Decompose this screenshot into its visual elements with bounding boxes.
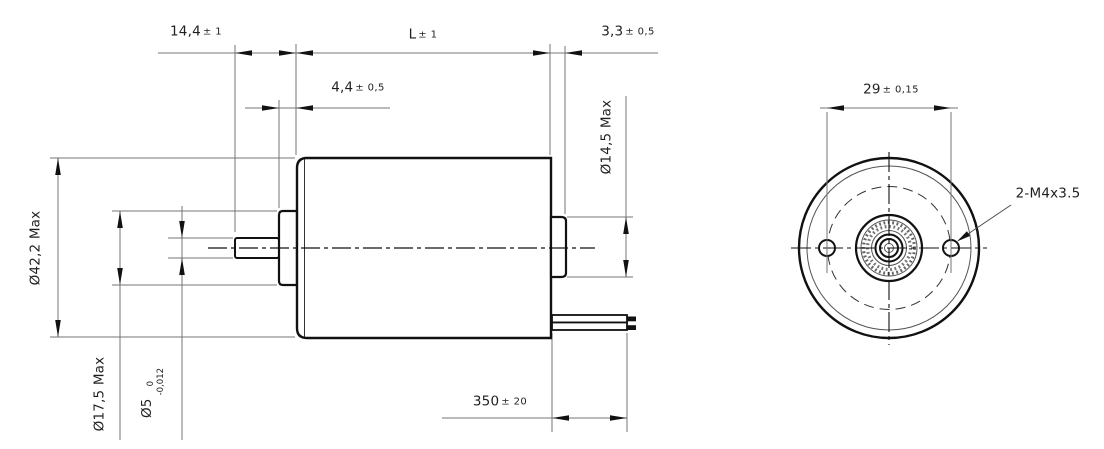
front-view: [791, 105, 1011, 345]
dim-label-rear-boss-diameter: Ø14,5 Max: [600, 100, 614, 175]
dim-label-body-diameter: Ø42,2 Max: [29, 211, 43, 286]
dim-label-hole-spacing: 29± 0,15: [863, 83, 919, 97]
lead-wires: [552, 315, 636, 330]
dim-label-body-length: L± 1: [409, 28, 438, 42]
dim-label-lead-wire-length: 350± 20: [473, 395, 527, 409]
rear-cap-outline: [551, 217, 566, 277]
dim-label-shaft-protrusion: 14,4± 1: [170, 25, 222, 39]
shaft-tolerance-stack: 0-0,012: [147, 368, 167, 395]
dim-label-front-boss-diameter: Ø17,5 Max: [93, 357, 107, 432]
motor-technical-drawing: 14,4± 1 L± 1 3,3± 0,5 4,4± 0,5 Ø14,5 Max…: [0, 0, 1104, 449]
dim-label-front-boss-length: 4,4± 0,5: [331, 81, 385, 95]
leader-mounting-holes: [957, 205, 1011, 242]
label-mounting-holes: 2-M4x3.5: [1016, 187, 1081, 201]
dim-label-rear-boss-length: 3,3± 0,5: [601, 25, 655, 39]
dim-label-shaft-diameter: Ø50-0,012: [141, 368, 167, 418]
